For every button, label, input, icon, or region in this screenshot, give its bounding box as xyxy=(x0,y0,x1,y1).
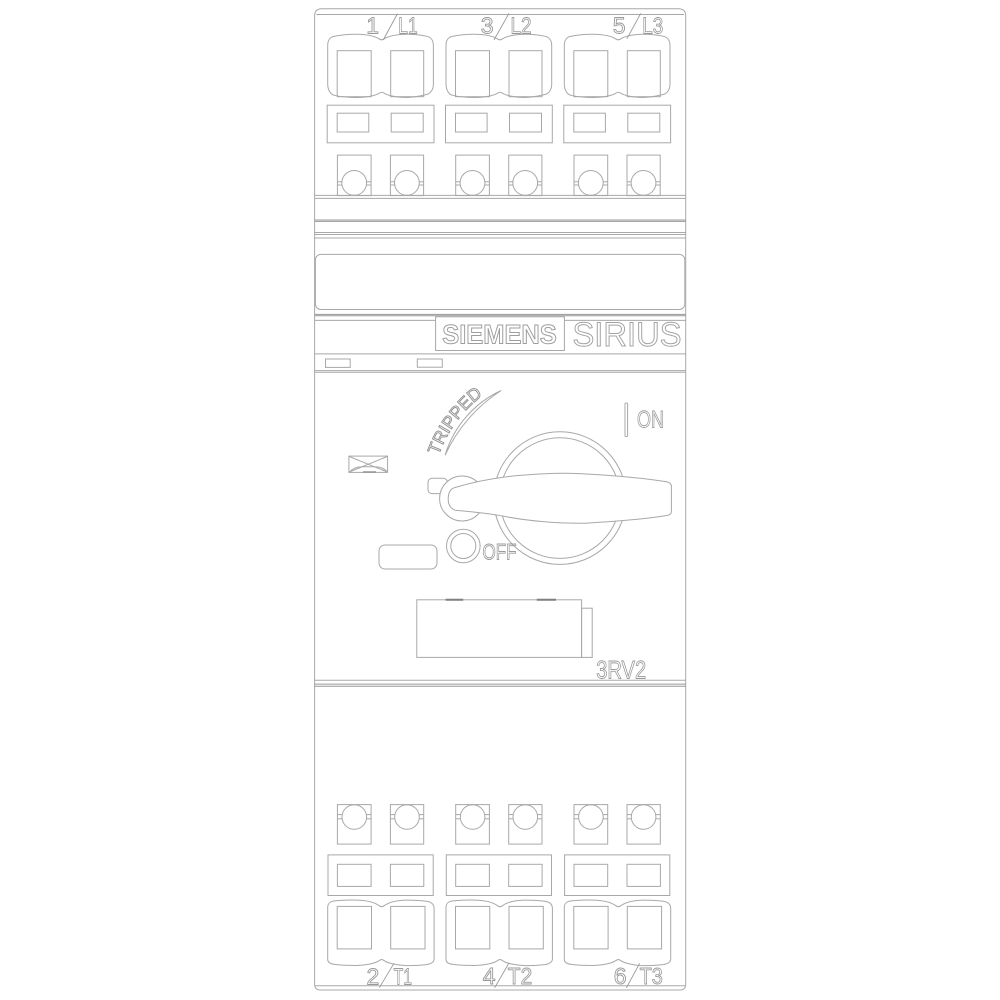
svg-text:TRIPPED: TRIPPED xyxy=(424,383,486,457)
svg-text:4: 4 xyxy=(483,963,496,989)
svg-text:L2: L2 xyxy=(511,13,532,39)
svg-text:SIEMENS: SIEMENS xyxy=(442,319,557,349)
svg-text:5: 5 xyxy=(613,13,626,39)
svg-text:3: 3 xyxy=(481,13,494,39)
svg-text:2: 2 xyxy=(367,963,380,989)
svg-text:6: 6 xyxy=(614,963,627,989)
svg-text:ON: ON xyxy=(637,407,664,434)
svg-text:T3: T3 xyxy=(640,963,663,989)
svg-text:T2: T2 xyxy=(508,963,532,989)
svg-text:T1: T1 xyxy=(394,963,412,989)
svg-text:L1: L1 xyxy=(398,13,417,39)
svg-text:OFF: OFF xyxy=(483,539,517,564)
svg-text:1: 1 xyxy=(366,13,379,39)
svg-text:L3: L3 xyxy=(642,13,663,39)
svg-text:SIRIUS: SIRIUS xyxy=(573,316,682,354)
